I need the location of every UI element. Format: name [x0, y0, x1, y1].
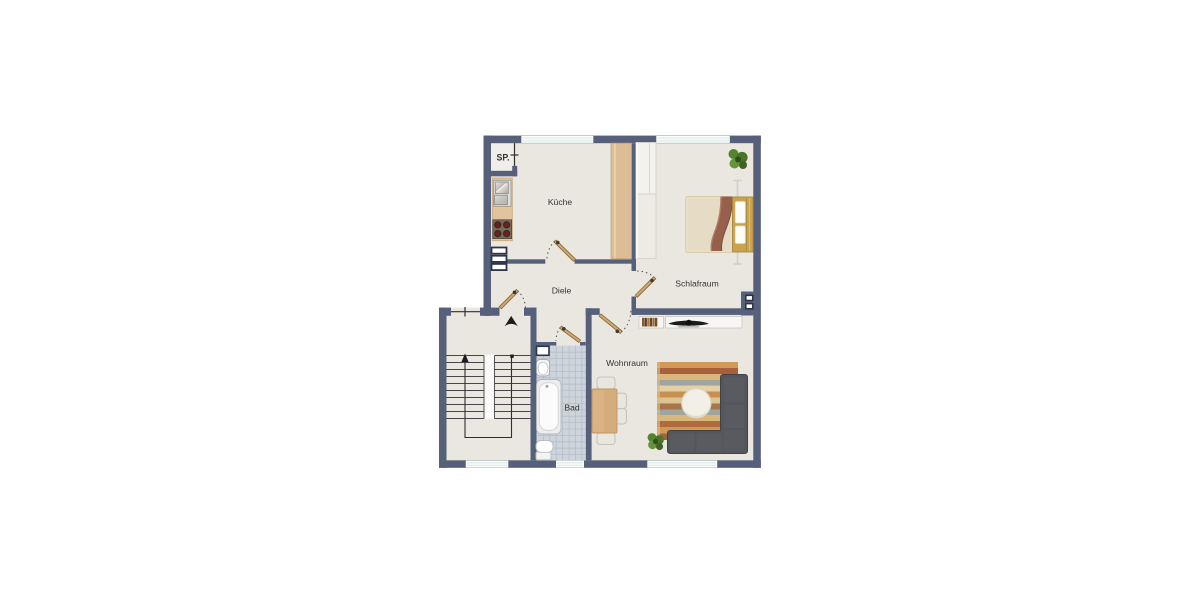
svg-text:Küche: Küche [548, 197, 573, 207]
svg-text:Diele: Diele [552, 285, 572, 295]
svg-text:Schlafraum: Schlafraum [675, 278, 718, 288]
svg-text:Wohnraum: Wohnraum [606, 358, 648, 368]
svg-text:SP.: SP. [496, 152, 509, 162]
svg-text:Bad: Bad [564, 403, 580, 413]
